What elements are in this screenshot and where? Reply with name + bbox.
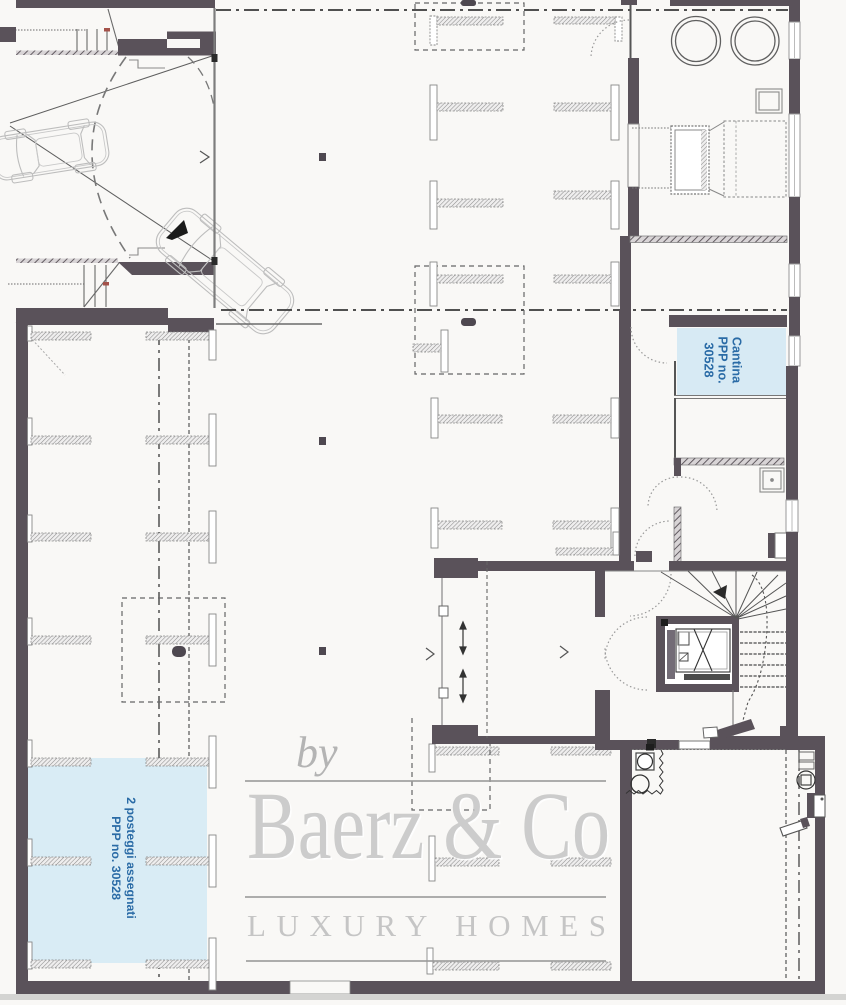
svg-text:CantinaPPP no.30528: CantinaPPP no.30528 bbox=[702, 336, 744, 384]
svg-text:by: by bbox=[296, 728, 338, 777]
svg-text:Baerz & Co: Baerz & Co bbox=[247, 772, 610, 879]
